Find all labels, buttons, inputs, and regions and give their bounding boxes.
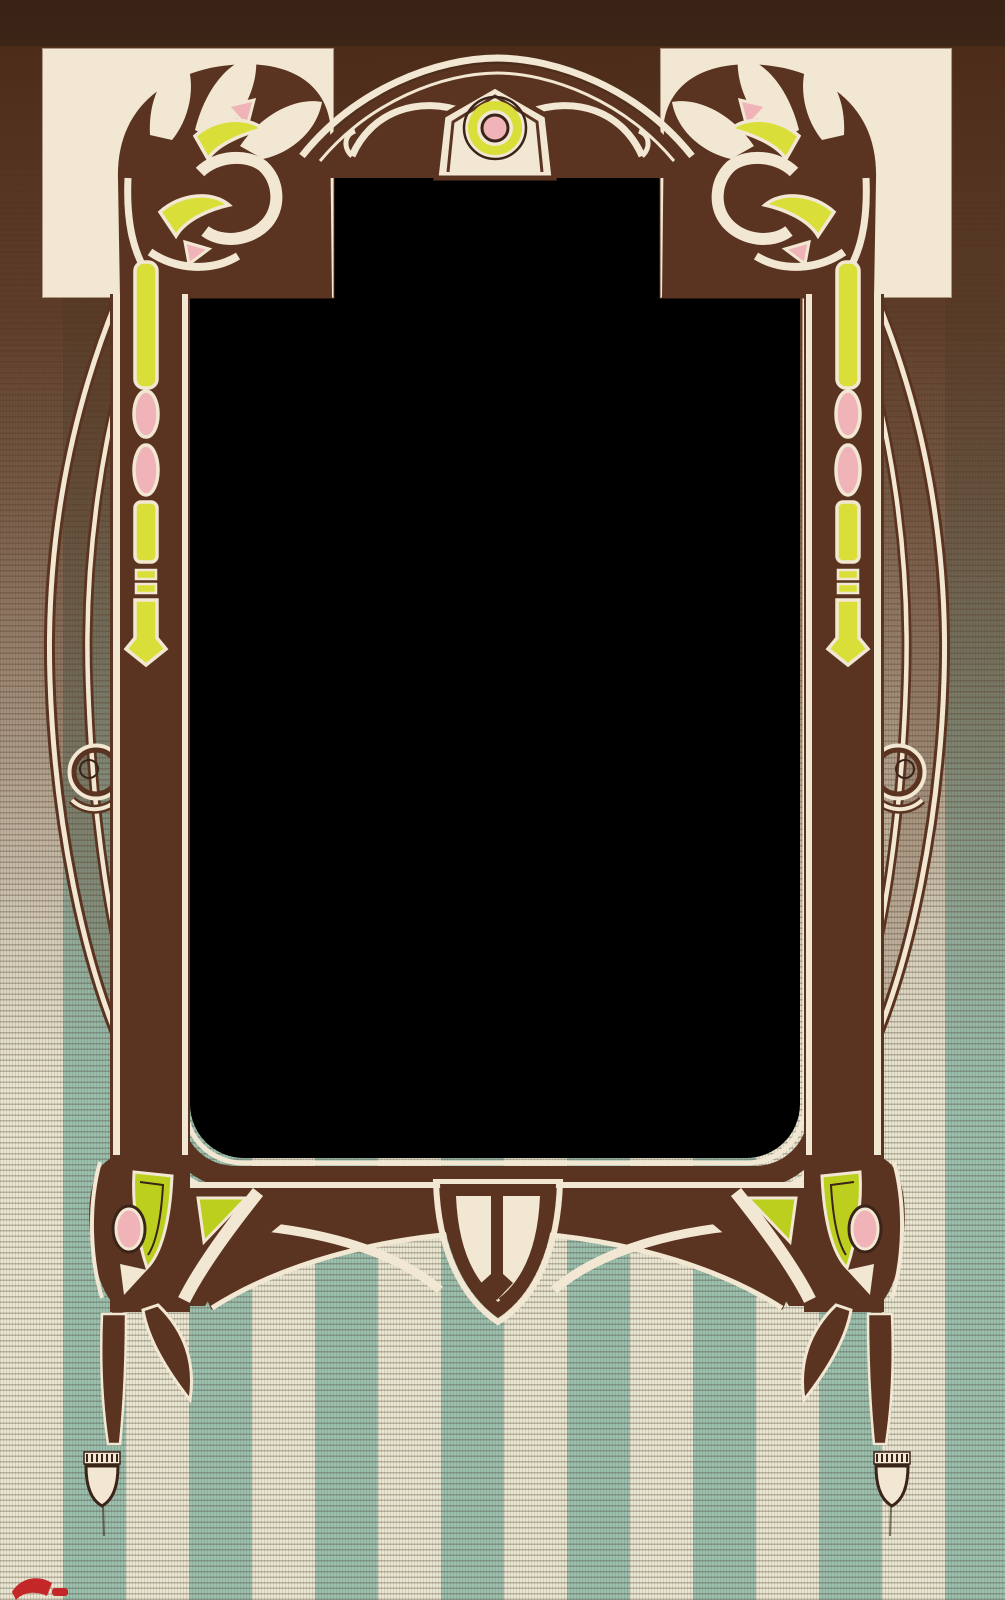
knot-pink-oval bbox=[116, 1209, 142, 1249]
knot-spike bbox=[143, 1305, 192, 1400]
rail-pinstripe-inner bbox=[182, 294, 188, 1190]
finial-spade-cup bbox=[86, 1466, 118, 1506]
top-dark-band bbox=[0, 0, 1005, 46]
side-rail-left bbox=[110, 262, 190, 1190]
photo-window bbox=[190, 170, 800, 1158]
medallion-concentric-circles bbox=[464, 97, 526, 159]
corner-scroll-top-left bbox=[42, 48, 334, 298]
rail-pinstripe-outer bbox=[113, 294, 120, 1190]
shield-pendant bbox=[436, 1182, 560, 1322]
postcard-frame-artwork bbox=[0, 0, 1005, 1600]
red-ink-fragment bbox=[12, 1578, 68, 1600]
drop-finial-left bbox=[84, 1314, 126, 1536]
frame-artwork-svg bbox=[0, 0, 1005, 1600]
